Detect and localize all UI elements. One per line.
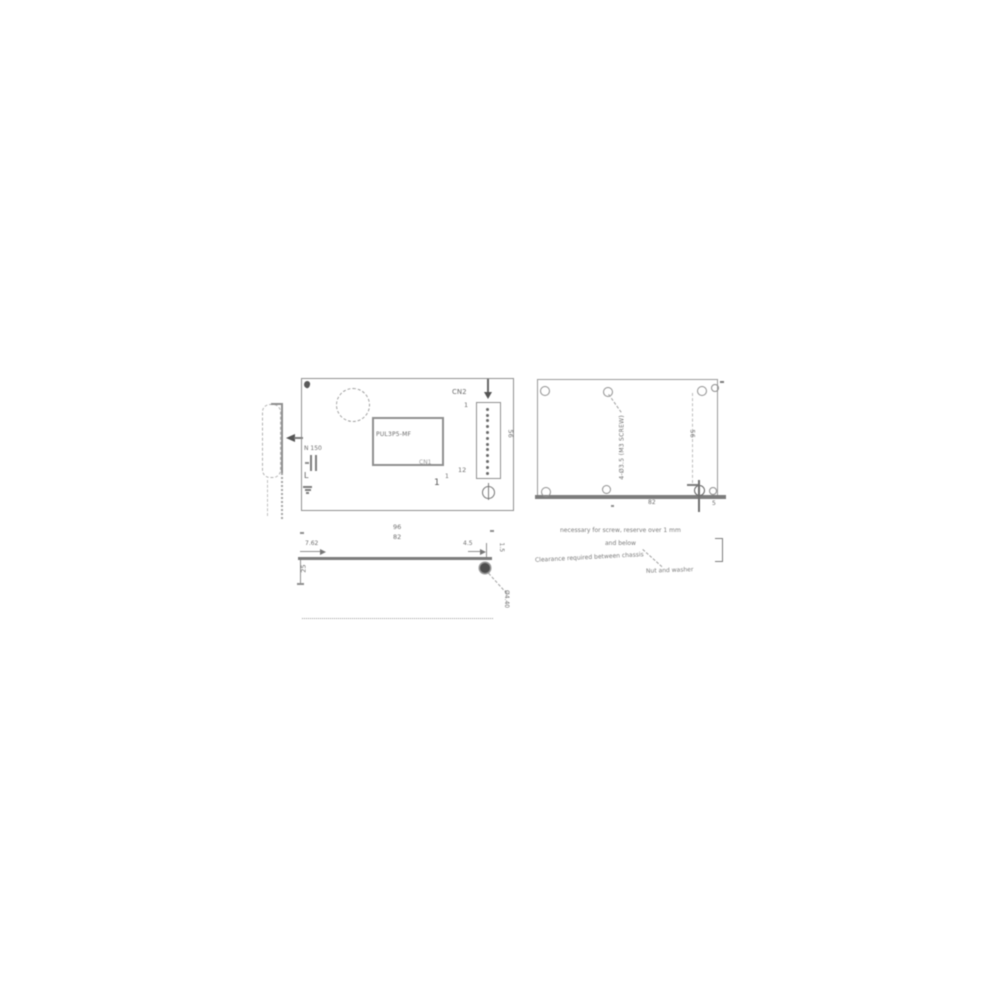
front-bottom-line xyxy=(302,618,493,619)
side-view-hidden-outline-lower xyxy=(267,480,268,516)
cn2-pin-dot xyxy=(486,443,489,446)
front-pitch-dim: 82 xyxy=(393,534,401,541)
front-left-edge-tick xyxy=(297,583,304,585)
cn1-label: CN1 xyxy=(419,460,432,467)
plate-width-dim: 82 xyxy=(648,500,656,507)
cn2-pin-dot xyxy=(486,466,489,469)
plate-corner-tick xyxy=(720,381,724,383)
front-top-edge xyxy=(298,557,492,560)
hole-note: 4-Ø3.5 (M3 SCREW) xyxy=(620,407,627,487)
cn2-pin-dot xyxy=(486,472,489,475)
front-right-dim: 4.5 xyxy=(463,541,473,548)
mount-hole-bottom-mid xyxy=(602,485,611,494)
front-left-dim-line xyxy=(300,551,322,552)
cn1-pin1-sup: 1 xyxy=(445,474,449,481)
note-line-3: Clearance required between chassis xyxy=(535,552,644,564)
front-side-height-dim: 25 xyxy=(301,564,308,572)
technical-drawing-canvas: PUL3P5-MF CN2 1 12 N 150 L CN1 1 1 56 xyxy=(0,0,1000,1000)
cn2-label: CN2 xyxy=(452,389,467,397)
plate-height-dim: 56 xyxy=(689,429,696,437)
terminal-tick xyxy=(305,462,309,464)
ground-icon xyxy=(303,486,312,494)
side-view-centerline xyxy=(281,473,283,519)
plate-cluster-tick xyxy=(687,484,698,486)
screw-dim: Ø4.40 xyxy=(502,590,509,608)
cn2-pin1-label: 1 xyxy=(464,402,468,409)
front-corner-dim: 1.5 xyxy=(497,543,504,553)
note-line-2: and below xyxy=(605,541,636,548)
cn2-pins xyxy=(485,405,490,475)
component-outline xyxy=(372,417,444,466)
front-overall-dim: 96 xyxy=(393,524,401,531)
front-ext-tick-right xyxy=(490,530,494,532)
plate-outline xyxy=(537,379,718,498)
screw-head-icon xyxy=(480,563,490,573)
cn2-pin-dot xyxy=(486,454,489,457)
cn2-arrow-line xyxy=(487,379,489,392)
cn2-pin-dot xyxy=(486,437,489,440)
front-left-dim: 7.62 xyxy=(305,541,318,548)
top-view-height-dim: 56 xyxy=(507,429,514,437)
note-line-1: necessary for screw, reserve over 1 mm xyxy=(560,528,681,535)
note-line-4: Nut and washer xyxy=(646,567,694,575)
mount-hole-top-right-2 xyxy=(711,384,719,392)
cn2-pin-dot xyxy=(486,419,489,422)
position-mark-line xyxy=(488,483,490,500)
down-arrow-icon xyxy=(484,392,492,399)
mount-hole-bottom-right-2 xyxy=(709,487,717,495)
mount-hole-bottom-right xyxy=(694,485,705,496)
terminal-bar-1 xyxy=(310,455,312,471)
side-view-edge-line xyxy=(281,403,283,473)
mount-hole-bottom-left xyxy=(541,487,551,497)
terminal-bar-2 xyxy=(315,455,317,471)
mount-hole-top-left xyxy=(540,386,550,396)
plate-fold-line xyxy=(692,393,693,483)
cn2-pin-dot xyxy=(486,448,489,451)
front-ext-tick-left xyxy=(300,532,304,534)
hidden-hole-circle xyxy=(336,388,370,422)
input-n-label: N 150 xyxy=(304,446,322,453)
side-view-top-cap xyxy=(271,403,283,405)
side-view-hidden-outline xyxy=(262,404,281,478)
cn1-pin1-label: 1 xyxy=(434,479,440,489)
cn2-pin-dot xyxy=(486,425,489,428)
cn2-pin-dot xyxy=(486,408,489,411)
input-l-label: L xyxy=(304,472,308,481)
component-label: PUL3P5-MF xyxy=(376,432,411,439)
cn2-pin-dot xyxy=(486,431,489,434)
cn2-pin-dot xyxy=(486,460,489,463)
plate-dim-tick xyxy=(611,505,614,507)
plate-cluster-line xyxy=(698,480,700,512)
note-leader xyxy=(642,549,662,567)
plate-edge-dim: 5 xyxy=(712,501,716,508)
cn2-pin-dot xyxy=(486,414,489,417)
cn2-pin12-label: 12 xyxy=(458,467,466,474)
mount-hole-top-right xyxy=(697,386,707,396)
front-left-dim-arrow-icon xyxy=(320,549,326,555)
note-bracket xyxy=(715,538,723,562)
